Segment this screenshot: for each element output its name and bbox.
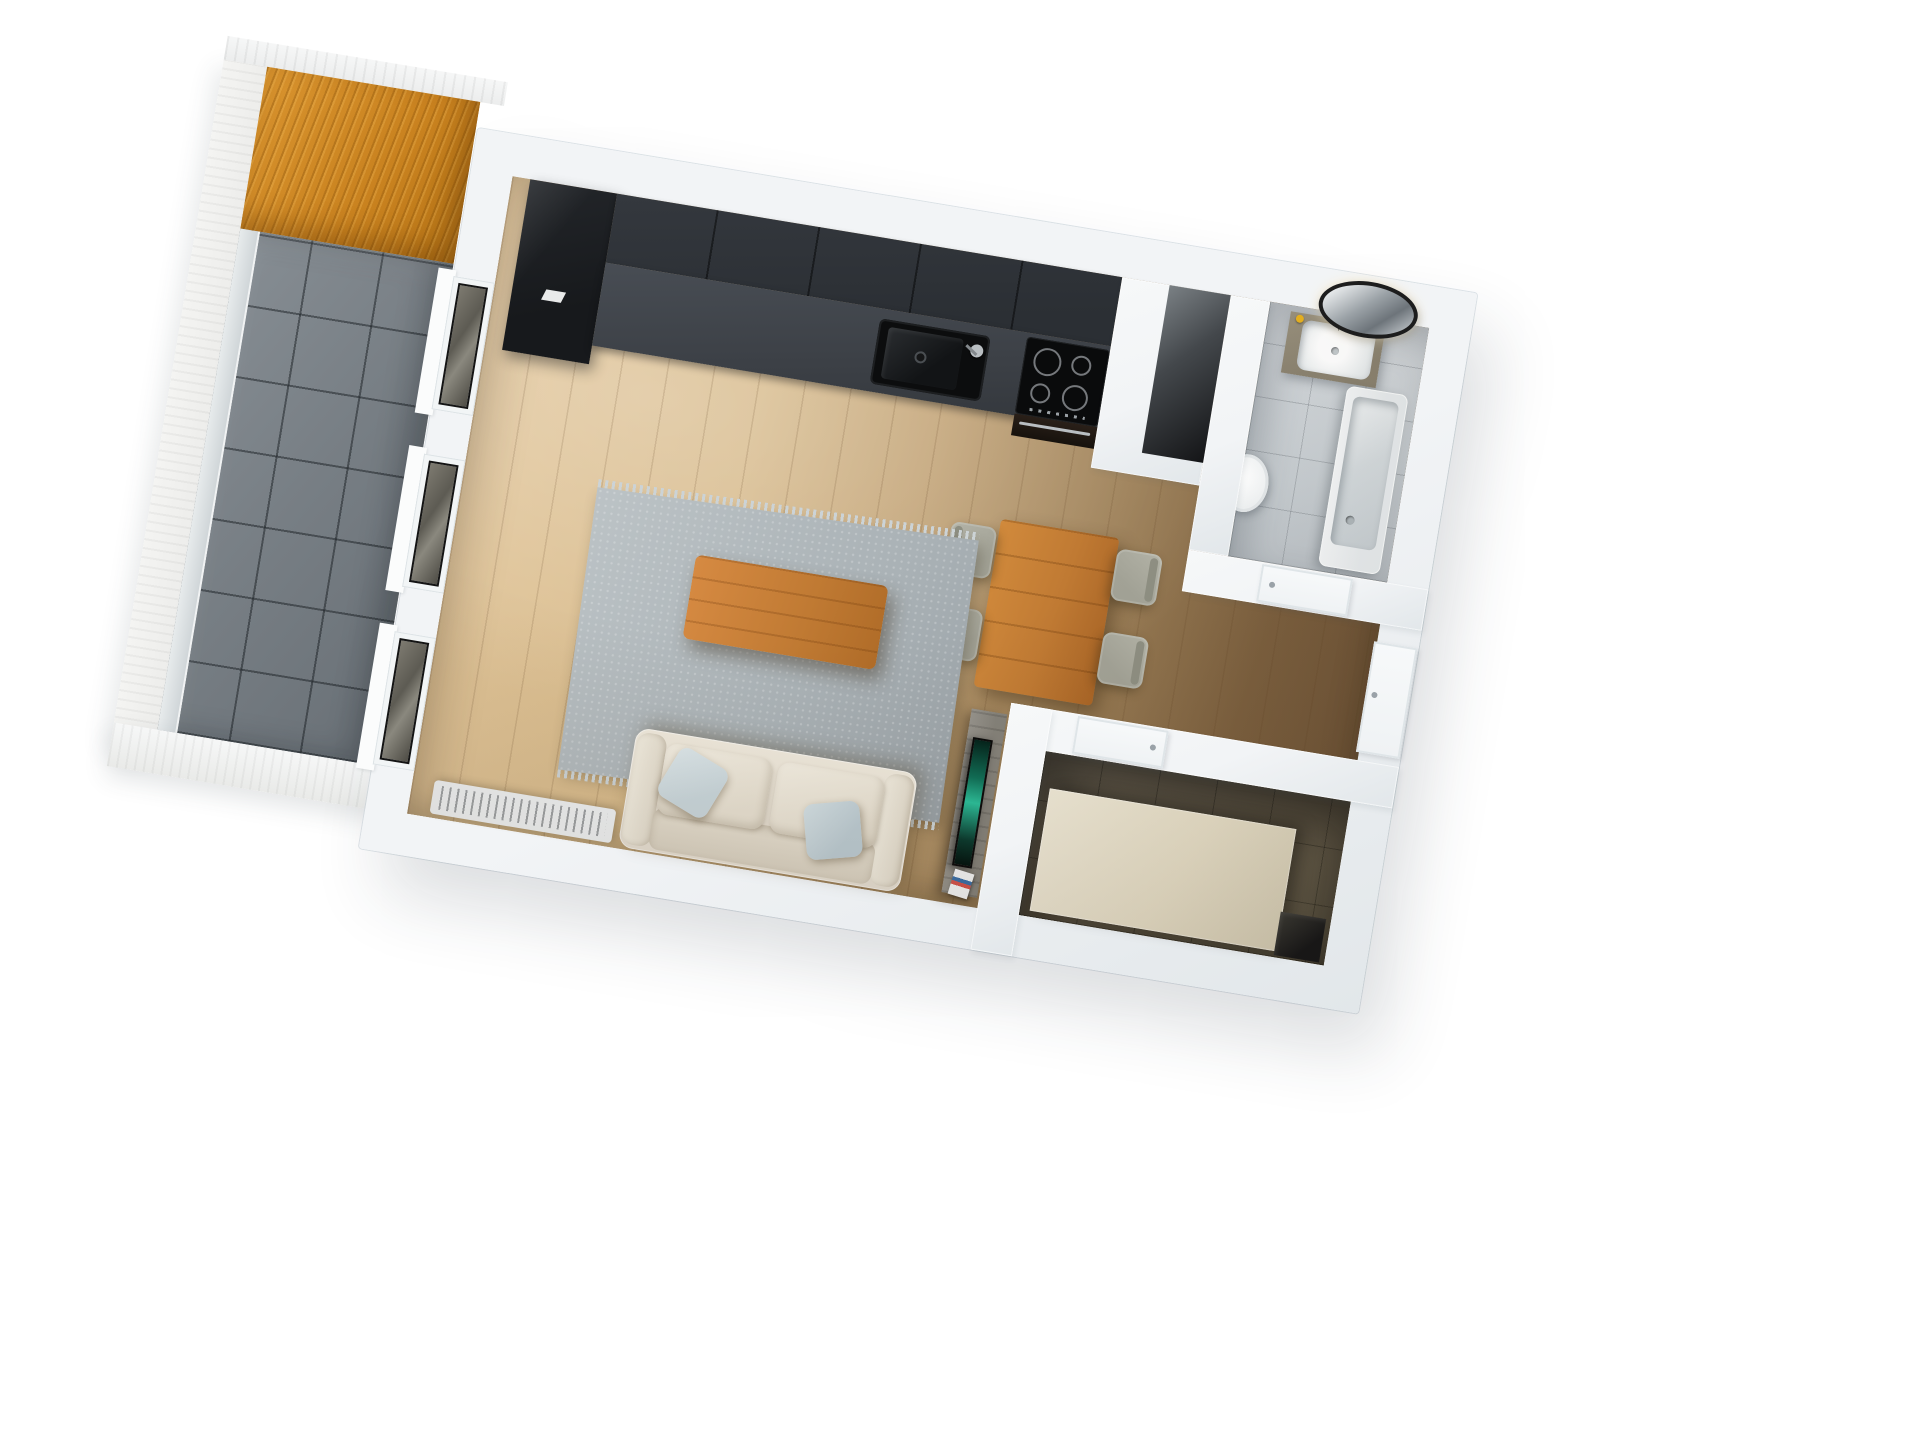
dining-chair	[1109, 548, 1163, 607]
door-handle	[1269, 581, 1276, 588]
throw-pillow	[803, 800, 863, 860]
dining-chair	[1096, 631, 1150, 690]
burner-ring	[1060, 383, 1090, 413]
corner-shaft	[1274, 912, 1327, 963]
burner-ring	[1031, 346, 1063, 378]
chair-backrest	[1144, 558, 1159, 603]
burner-ring	[1070, 354, 1093, 377]
door-handle	[1149, 744, 1156, 751]
oven-handle	[1019, 421, 1091, 436]
door-handle	[1371, 692, 1378, 699]
floorplan-canvas	[0, 0, 1920, 1440]
burner-ring	[1029, 382, 1052, 405]
chair-backrest	[1130, 641, 1145, 686]
induction-cooktop	[1015, 337, 1111, 428]
